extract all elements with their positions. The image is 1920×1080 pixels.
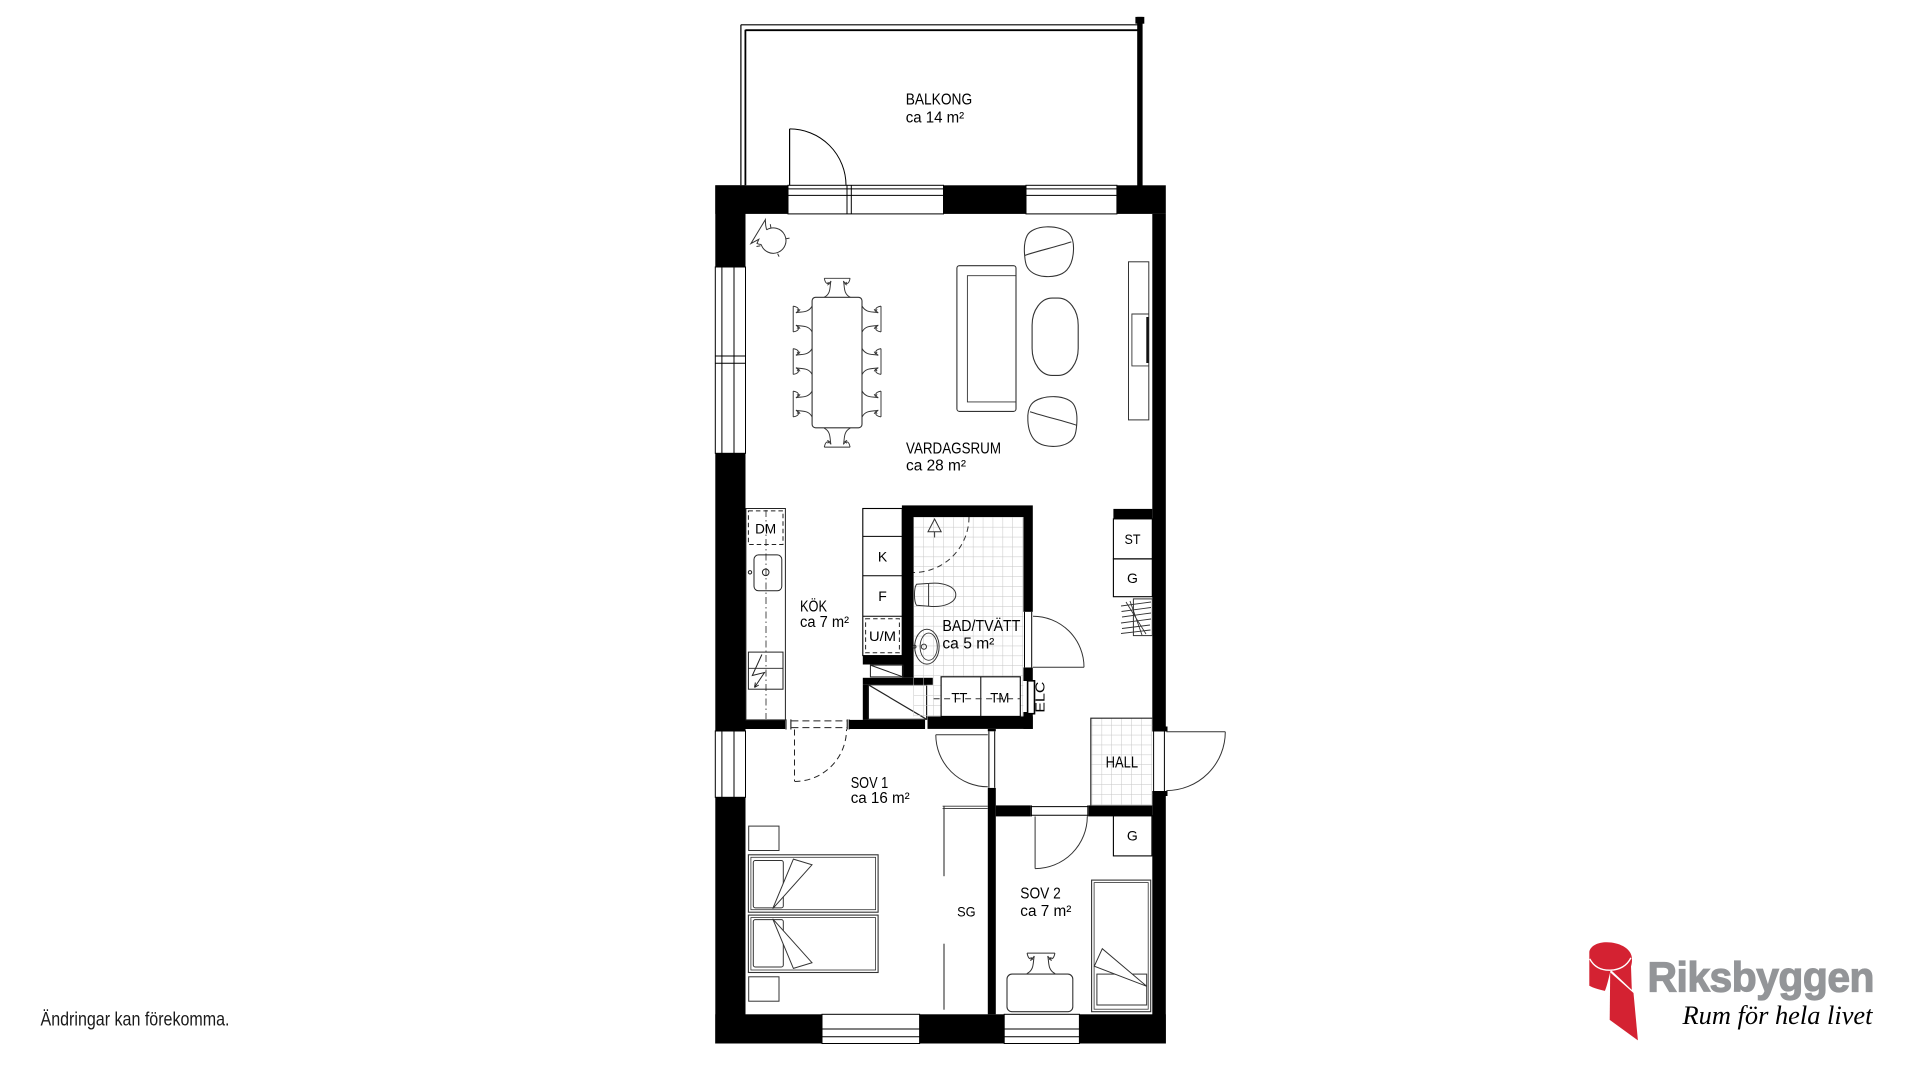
svg-text:SG: SG (957, 904, 976, 920)
svg-text:K: K (878, 548, 888, 564)
svg-text:Riksbyggen: Riksbyggen (1648, 953, 1875, 1000)
svg-text:U/M: U/M (869, 628, 896, 644)
svg-text:DM: DM (755, 520, 776, 536)
svg-text:ca 5 m²: ca 5 m² (942, 636, 994, 653)
svg-text:TM: TM (990, 689, 1009, 705)
svg-text:KÖK: KÖK (800, 598, 828, 616)
svg-text:ca 7 m²: ca 7 m² (800, 614, 849, 631)
svg-text:Rum för hela livet: Rum för hela livet (1681, 1001, 1873, 1030)
svg-text:SOV 2: SOV 2 (1020, 886, 1061, 903)
svg-text:ca 28 m²: ca 28 m² (906, 458, 966, 475)
svg-text:F: F (878, 588, 887, 604)
svg-text:G: G (1127, 570, 1138, 586)
svg-text:VARDAGSRUM: VARDAGSRUM (906, 440, 1001, 457)
svg-text:Ändringar kan förekomma.: Ändringar kan förekomma. (41, 1009, 230, 1031)
svg-text:HALL: HALL (1106, 755, 1139, 772)
svg-text:BALKONG: BALKONG (906, 91, 973, 108)
svg-text:ca 16 m²: ca 16 m² (851, 790, 910, 807)
svg-text:ST: ST (1125, 531, 1141, 547)
svg-text:ca 14 m²: ca 14 m² (906, 110, 965, 127)
svg-text:BAD/TVÄTT: BAD/TVÄTT (942, 618, 1020, 635)
svg-text:ca 7 m²: ca 7 m² (1020, 903, 1071, 920)
svg-text:ELC: ELC (1034, 682, 1048, 713)
svg-text:TT: TT (951, 689, 967, 705)
svg-text:G: G (1127, 828, 1138, 844)
